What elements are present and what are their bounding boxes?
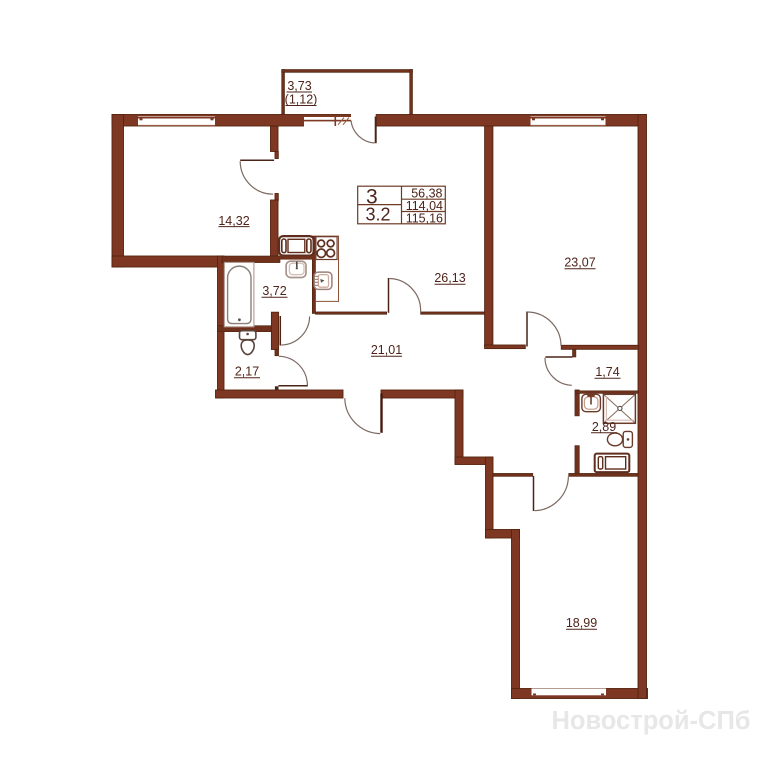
- svg-text:2,17: 2,17: [235, 365, 259, 379]
- svg-text:Новострой-СПб: Новострой-СПб: [551, 707, 750, 735]
- svg-text:14,32: 14,32: [218, 214, 249, 228]
- svg-text:(1,12): (1,12): [285, 93, 318, 107]
- svg-text:21,01: 21,01: [371, 343, 402, 357]
- svg-text:3,73: 3,73: [287, 79, 311, 93]
- svg-text:26,13: 26,13: [434, 271, 465, 285]
- svg-text:3.2: 3.2: [366, 205, 391, 225]
- svg-text:18,99: 18,99: [566, 616, 597, 630]
- svg-text:23,07: 23,07: [564, 256, 595, 270]
- svg-text:3,72: 3,72: [262, 284, 286, 298]
- svg-text:1,74: 1,74: [595, 365, 619, 379]
- svg-text:115,16: 115,16: [406, 211, 443, 225]
- svg-text:2,89: 2,89: [592, 420, 616, 434]
